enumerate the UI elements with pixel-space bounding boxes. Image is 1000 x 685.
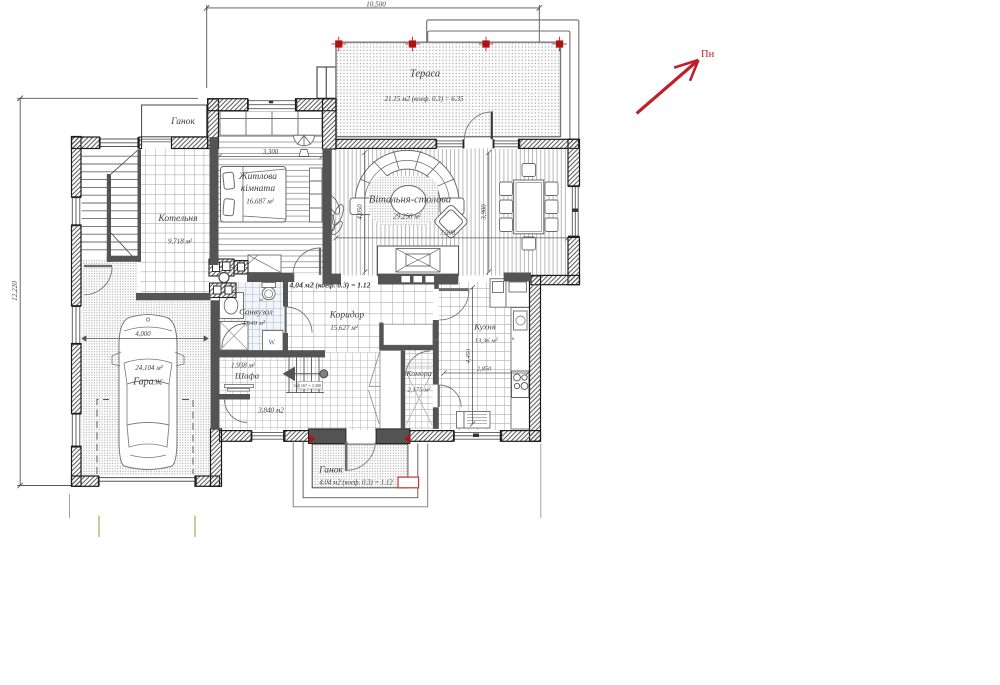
svg-text:10,500: 10,500	[366, 1, 386, 9]
svg-text:16,687 м²: 16,687 м²	[246, 198, 274, 206]
svg-text:Шафа: Шафа	[234, 371, 260, 381]
svg-text:4,000: 4,000	[135, 331, 151, 338]
svg-text:24,104 м²: 24,104 м²	[135, 364, 163, 372]
svg-text:2,850: 2,850	[477, 366, 492, 373]
svg-text:2,175 м²: 2,175 м²	[408, 387, 432, 394]
svg-text:Вітальня-столова: Вітальня-столова	[369, 195, 451, 206]
svg-text:W: W	[269, 339, 276, 347]
svg-text:WC: WC	[259, 299, 265, 303]
svg-text:Ганок: Ганок	[170, 117, 195, 127]
svg-text:Коридор: Коридор	[329, 310, 365, 321]
svg-text:3,840 м2: 3,840 м2	[257, 407, 284, 415]
svg-text:Житлова: Житлова	[238, 172, 277, 182]
svg-text:4.04 м2 (коеф. 0.3) = 1.12: 4.04 м2 (коеф. 0.3) = 1.12	[319, 480, 393, 487]
svg-text:Ганок: Ганок	[318, 466, 343, 476]
svg-text:13,36 м²: 13,36 м²	[475, 337, 499, 344]
svg-text:3,900: 3,900	[481, 204, 488, 221]
svg-text:9,718 м²: 9,718 м²	[168, 238, 193, 246]
svg-text:12,220: 12,220	[11, 281, 19, 301]
svg-text:3,300: 3,300	[262, 149, 279, 156]
svg-text:Санвузол: Санвузол	[239, 307, 273, 317]
svg-text:7,500: 7,500	[440, 230, 456, 237]
svg-text:4,04 м2 (коеф. 0.3) = 1.12: 4,04 м2 (коеф. 0.3) = 1.12	[289, 281, 371, 290]
svg-text:15,627 м²: 15,627 м²	[330, 324, 358, 332]
svg-text:29,250 м²: 29,250 м²	[393, 213, 421, 221]
svg-text:кімната: кімната	[241, 184, 276, 194]
svg-text:Комора: Комора	[405, 369, 431, 378]
svg-text:Тераса: Тераса	[410, 69, 440, 80]
svg-text:Пн: Пн	[701, 49, 715, 60]
svg-text:1,938 м²: 1,938 м²	[231, 362, 256, 370]
svg-text:4,450: 4,450	[465, 348, 472, 363]
svg-text:Гараж: Гараж	[132, 377, 163, 388]
svg-text:21.15 м2 (коеф. 0.3) = 6.35: 21.15 м2 (коеф. 0.3) = 6.35	[384, 95, 464, 103]
svg-text:Котельня: Котельня	[157, 214, 197, 224]
svg-text:4,050: 4,050	[357, 204, 364, 220]
svg-text:4,049 м²: 4,049 м²	[242, 320, 266, 327]
svg-text:Кухня: Кухня	[473, 322, 496, 332]
